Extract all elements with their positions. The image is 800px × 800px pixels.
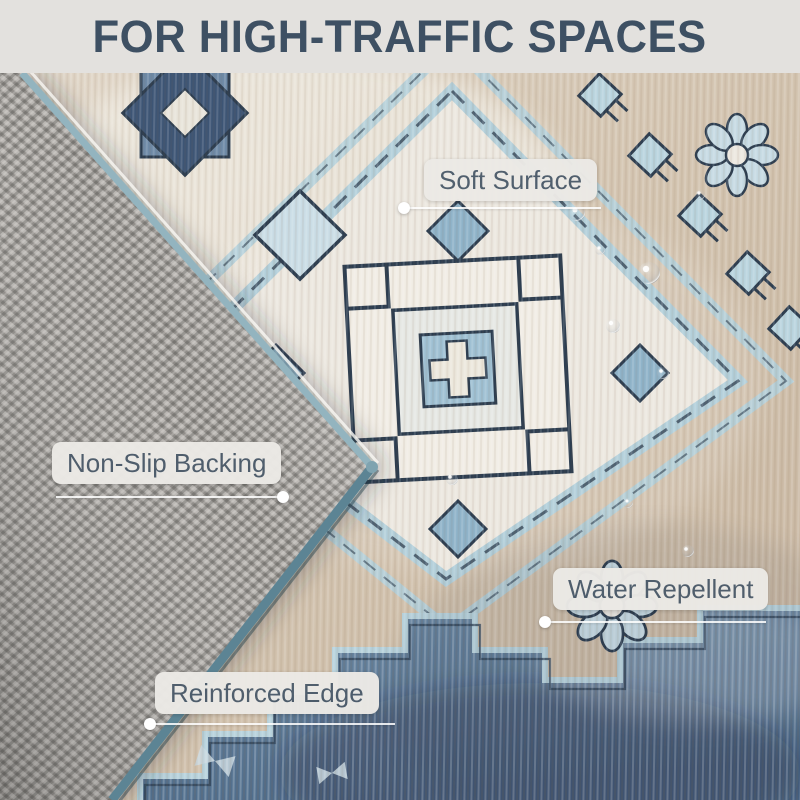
- callout-pill-reinforced-edge: Reinforced Edge: [155, 672, 379, 714]
- callout-line-non-slip-backing: [56, 496, 284, 498]
- callout-pill-soft-surface: Soft Surface: [424, 159, 597, 201]
- headline-text: FOR HIGH-TRAFFIC SPACES: [93, 11, 707, 63]
- callout-dot-soft-surface: [398, 202, 410, 214]
- headline-band: FOR HIGH-TRAFFIC SPACES: [0, 0, 800, 73]
- callout-line-soft-surface: [404, 207, 601, 209]
- product-feature-image: FOR HIGH-TRAFFIC SPACES: [0, 0, 800, 800]
- callout-line-reinforced-edge: [150, 723, 395, 725]
- rug-photo-illustration: [0, 73, 800, 800]
- callout-line-water-repellent: [545, 621, 766, 623]
- callout-dot-reinforced-edge: [144, 718, 156, 730]
- callout-pill-non-slip-backing: Non-Slip Backing: [52, 442, 281, 484]
- callout-pill-water-repellent: Water Repellent: [553, 568, 768, 610]
- callout-dot-water-repellent: [539, 616, 551, 628]
- rug-photo: [0, 73, 800, 800]
- callout-dot-non-slip-backing: [277, 491, 289, 503]
